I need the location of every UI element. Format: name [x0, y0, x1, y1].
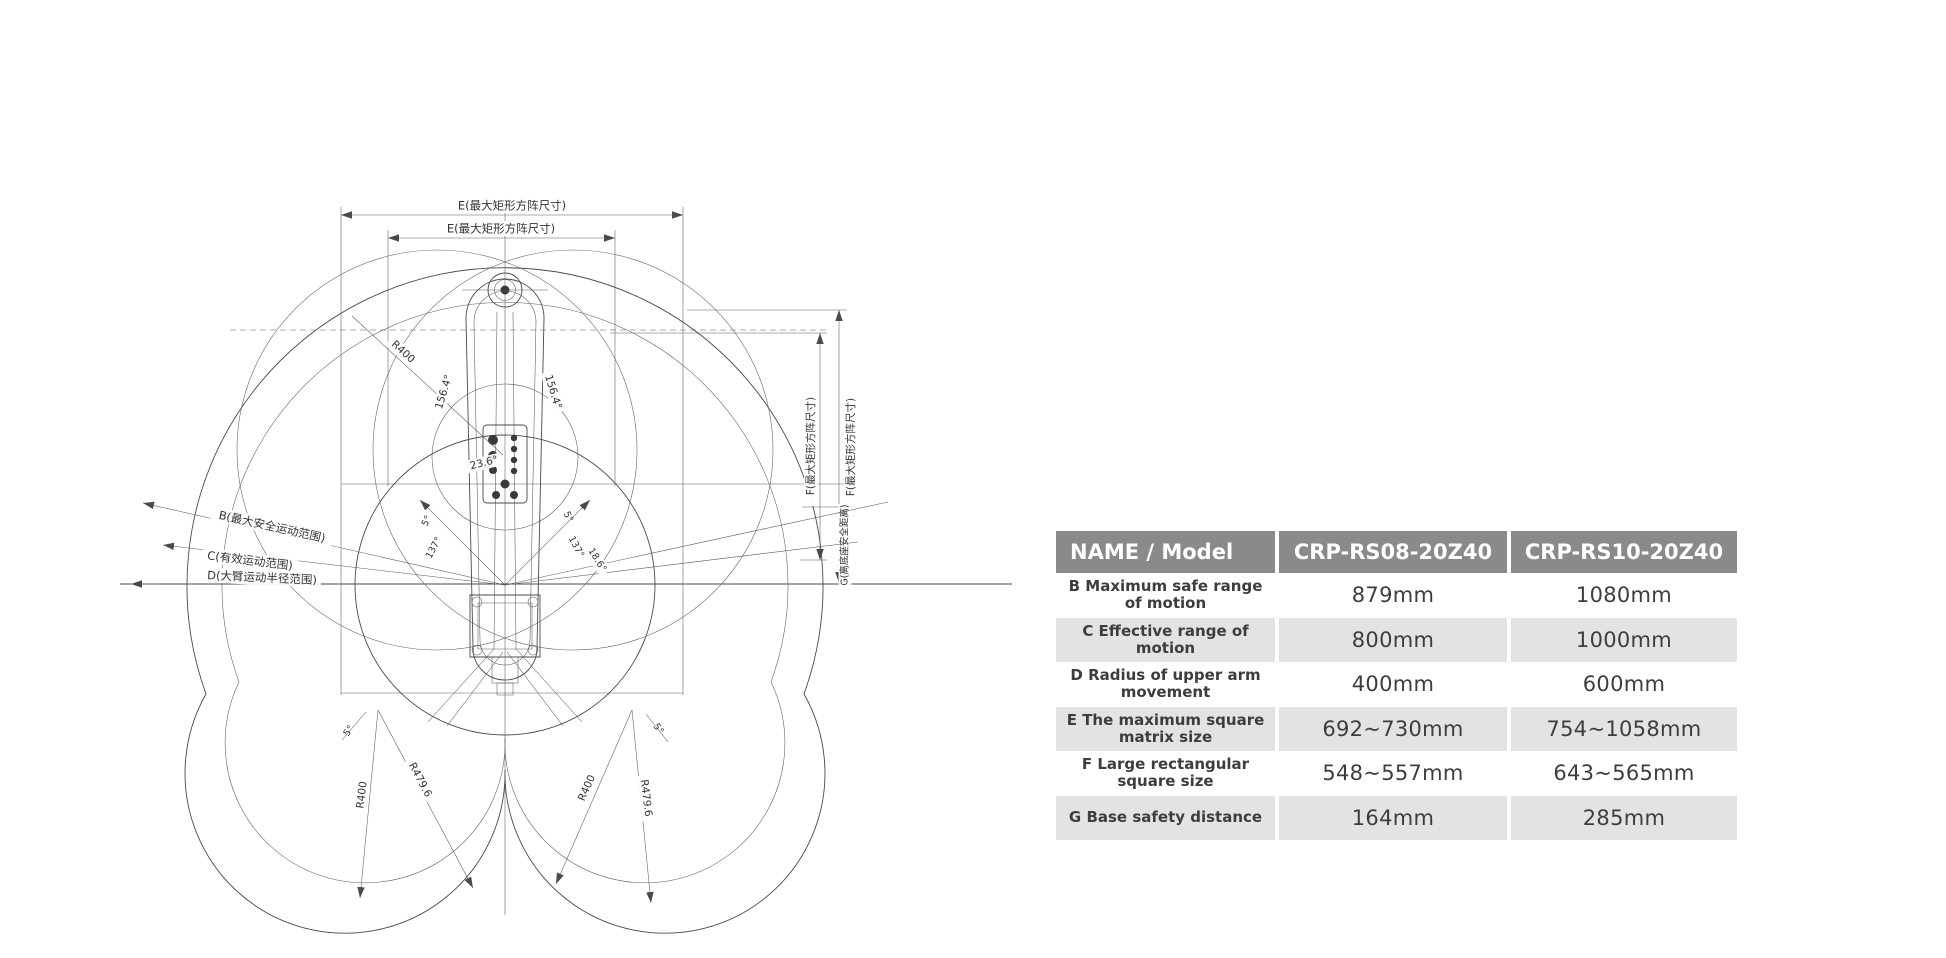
- angle-rays: [420, 500, 888, 585]
- row-d-rs08: 400mm: [1279, 662, 1507, 707]
- row-g-rs10: 285mm: [1511, 796, 1737, 841]
- angle-137-left: 137°: [424, 535, 444, 560]
- table-header-rs10: CRP-RS10-20Z40: [1511, 531, 1737, 573]
- leader-b: B(最大安全运动范围): [143, 503, 505, 585]
- left-sweep-circle: [237, 250, 637, 650]
- row-b-rs10: 1080mm: [1511, 573, 1737, 618]
- angle-5-right-lobe: 5°: [650, 721, 665, 736]
- table-header-name: NAME / Model: [1056, 531, 1275, 573]
- row-e-rs08: 692~730mm: [1279, 707, 1507, 752]
- e-outer-label: E(最大矩形方阵尺寸): [458, 199, 566, 213]
- r479-right-label: R479.6: [638, 779, 655, 818]
- row-g-name: G Base safety distance: [1056, 796, 1275, 841]
- angle-156-left: 156.4°: [433, 373, 455, 410]
- angle-137-right: 137°: [566, 534, 586, 559]
- elbow-joint-icon: [501, 286, 510, 295]
- row-f-rs10: 643~565mm: [1511, 751, 1737, 796]
- angle-5-right: 5°: [561, 510, 576, 525]
- b-label: B(最大安全运动范围): [217, 508, 326, 545]
- row-d-name: D Radius of upper arm movement: [1056, 662, 1275, 707]
- row-d-rs10: 600mm: [1511, 662, 1737, 707]
- robot-workspace-diagram: E(最大矩形方阵尺寸) E(最大矩形方阵尺寸) F(最大矩形方阵尺寸) F(最大…: [90, 160, 1040, 950]
- row-f-name: F Large rectangular square size: [1056, 751, 1275, 796]
- left-lobe-radii: R400 R479.6 5°: [341, 710, 473, 898]
- dimension-f-outer: F(最大矩形方阵尺寸): [687, 310, 858, 583]
- dimension-g: G(离底座安全距离): [802, 504, 852, 586]
- f-outer-label: F(最大矩形方阵尺寸): [844, 398, 857, 496]
- row-c-name: C Effective range of motion: [1056, 618, 1275, 663]
- angle-18-6: 18.6°: [585, 546, 608, 574]
- angle-5-left: 5°: [420, 514, 435, 529]
- row-b-name: B Maximum safe range of motion: [1056, 573, 1275, 618]
- r400-right-label: R400: [576, 773, 598, 803]
- row-e-name: E The maximum square matrix size: [1056, 707, 1275, 752]
- r400-left-label: R400: [354, 781, 369, 810]
- page: E(最大矩形方阵尺寸) E(最大矩形方阵尺寸) F(最大矩形方阵尺寸) F(最大…: [0, 0, 1946, 958]
- row-c-rs08: 800mm: [1279, 618, 1507, 663]
- row-g-rs08: 164mm: [1279, 796, 1507, 841]
- table-header-rs08: CRP-RS08-20Z40: [1279, 531, 1507, 573]
- row-b-rs08: 879mm: [1279, 573, 1507, 618]
- leader-r400-upper: R400: [352, 316, 503, 455]
- row-f-rs08: 548~557mm: [1279, 751, 1507, 796]
- spec-table: NAME / Model CRP-RS08-20Z40 CRP-RS10-20Z…: [1056, 531, 1737, 840]
- dimension-e-outer: E(最大矩形方阵尺寸): [341, 198, 683, 695]
- angle-156-right: 156.4°: [542, 373, 564, 410]
- row-c-rs10: 1000mm: [1511, 618, 1737, 663]
- g-label: G(离底座安全距离): [839, 504, 851, 585]
- e-inner-label: E(最大矩形方阵尺寸): [447, 222, 555, 236]
- f-inner-label: F(最大矩形方阵尺寸): [804, 397, 817, 495]
- right-lobe-radii: R400 R479.6 5°: [556, 710, 668, 903]
- row-e-rs10: 754~1058mm: [1511, 707, 1737, 752]
